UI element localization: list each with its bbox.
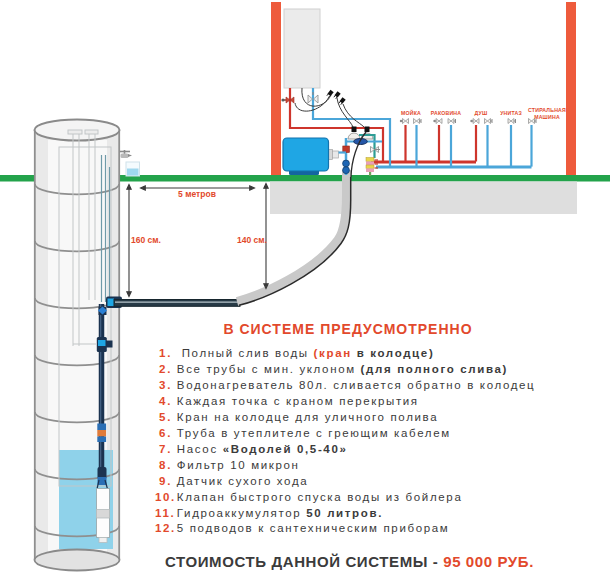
- svg-text:ДУШ: ДУШ: [475, 110, 488, 116]
- svg-text:МОЙКА: МОЙКА: [401, 109, 421, 116]
- svg-text:РАКОВИНА: РАКОВИНА: [431, 110, 462, 116]
- svg-text:140 см.: 140 см.: [237, 235, 267, 245]
- svg-text:160 см.: 160 см.: [131, 235, 161, 245]
- svg-text:МАШИНА: МАШИНА: [534, 114, 560, 120]
- svg-text:УНИТАЗ: УНИТАЗ: [500, 110, 522, 116]
- svg-text:СТИРАЛЬНАЯ: СТИРАЛЬНАЯ: [528, 107, 566, 113]
- svg-text:5 метров: 5 метров: [178, 189, 216, 199]
